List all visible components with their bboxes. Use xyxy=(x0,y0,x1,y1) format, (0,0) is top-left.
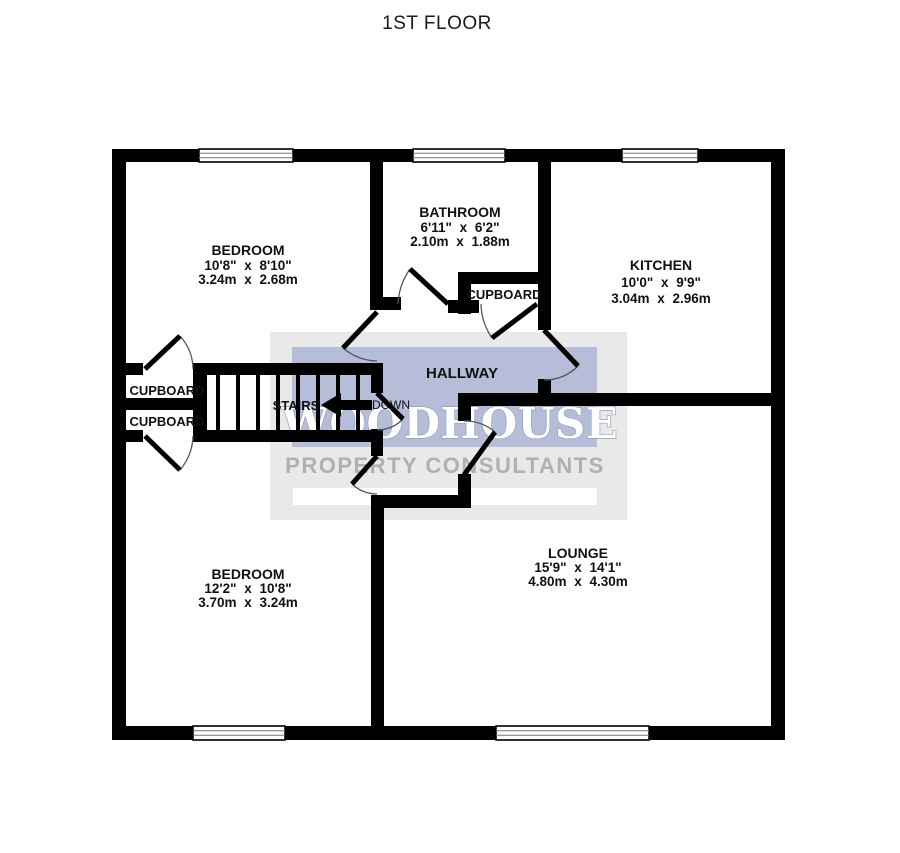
window-bedroom2 xyxy=(193,726,285,740)
bathroom-imperial: 6'11" x 6'2" xyxy=(420,220,499,235)
window-bathroom xyxy=(413,149,505,162)
lounge-name: LOUNGE xyxy=(548,545,608,561)
window-bedroom1 xyxy=(199,149,293,162)
wall-hallcupboard-top xyxy=(458,272,551,284)
door-leaf-cupboard-top xyxy=(145,336,180,369)
bathroom-metric: 2.10m x 1.88m xyxy=(410,234,510,249)
wall-hallway-bottom xyxy=(371,495,471,508)
wall-stairs-bottom xyxy=(193,430,383,442)
wall-stairs-end-upper xyxy=(371,363,383,393)
kitchen-name: KITCHEN xyxy=(630,257,692,273)
labels: 1ST FLOOR BEDROOM 10'8" x 8'10" 3.24m x … xyxy=(129,13,710,610)
window-lounge xyxy=(496,726,649,740)
wall-bed1-bath xyxy=(370,162,383,298)
wall-stairs-end-lower xyxy=(371,429,383,456)
wall-cupboards-divider xyxy=(112,398,207,410)
bathroom-name: BATHROOM xyxy=(419,204,500,220)
lounge-imperial: 15'9" x 14'1" xyxy=(534,560,621,575)
door-arc-cupboard-top xyxy=(180,336,193,369)
cupboard-hall-label: CUPBOARD xyxy=(466,287,541,302)
wall-bath-bottom-left xyxy=(370,297,401,310)
kitchen-imperial: 10'0" x 9'9" xyxy=(621,275,701,290)
bedroom1-name: BEDROOM xyxy=(211,242,284,258)
bedroom2-name: BEDROOM xyxy=(211,566,284,582)
wall-stairs-top xyxy=(193,363,383,375)
door-leaf-cupboard-bottom xyxy=(145,436,180,470)
page-title: 1ST FLOOR xyxy=(382,13,492,34)
wall-cupboard-bottom-stub xyxy=(112,430,143,442)
wall-bed2-right xyxy=(371,495,384,726)
wall-kitchen-bottom xyxy=(458,393,785,406)
wall-bath-kitchen xyxy=(538,162,551,330)
bedroom2-imperial: 12'2" x 10'8" xyxy=(204,581,291,596)
cupboard-left-bottom-label: CUPBOARD xyxy=(129,414,204,429)
wall-outer-left xyxy=(112,149,126,740)
watermark-tagline: PROPERTY CONSULTANTS xyxy=(285,453,605,478)
kitchen-metric: 3.04m x 2.96m xyxy=(611,291,711,306)
door-leaf-bathroom xyxy=(410,269,448,304)
hallway-label: HALLWAY xyxy=(426,365,498,382)
floor-plan-drawing: WOODHOUSE PROPERTY CONSULTANTS xyxy=(0,0,900,853)
lounge-metric: 4.80m x 4.30m xyxy=(528,574,628,589)
door-arc-cupboard-bottom xyxy=(180,436,193,470)
floor-plan-page: WOODHOUSE PROPERTY CONSULTANTS xyxy=(0,0,900,853)
cupboard-left-top-label: CUPBOARD xyxy=(129,383,204,398)
bedroom1-imperial: 10'8" x 8'10" xyxy=(204,258,291,273)
wall-outer-right xyxy=(771,149,785,740)
window-kitchen xyxy=(622,149,698,162)
stairs-label: STAIRS xyxy=(273,398,320,413)
stairs-direction-label: DOWN xyxy=(372,398,410,412)
wall-cupboard-top-stub xyxy=(112,363,143,375)
wall-lounge-stub-upper xyxy=(458,393,471,421)
bedroom2-metric: 3.70m x 3.24m xyxy=(198,595,298,610)
bedroom1-metric: 3.24m x 2.68m xyxy=(198,272,298,287)
